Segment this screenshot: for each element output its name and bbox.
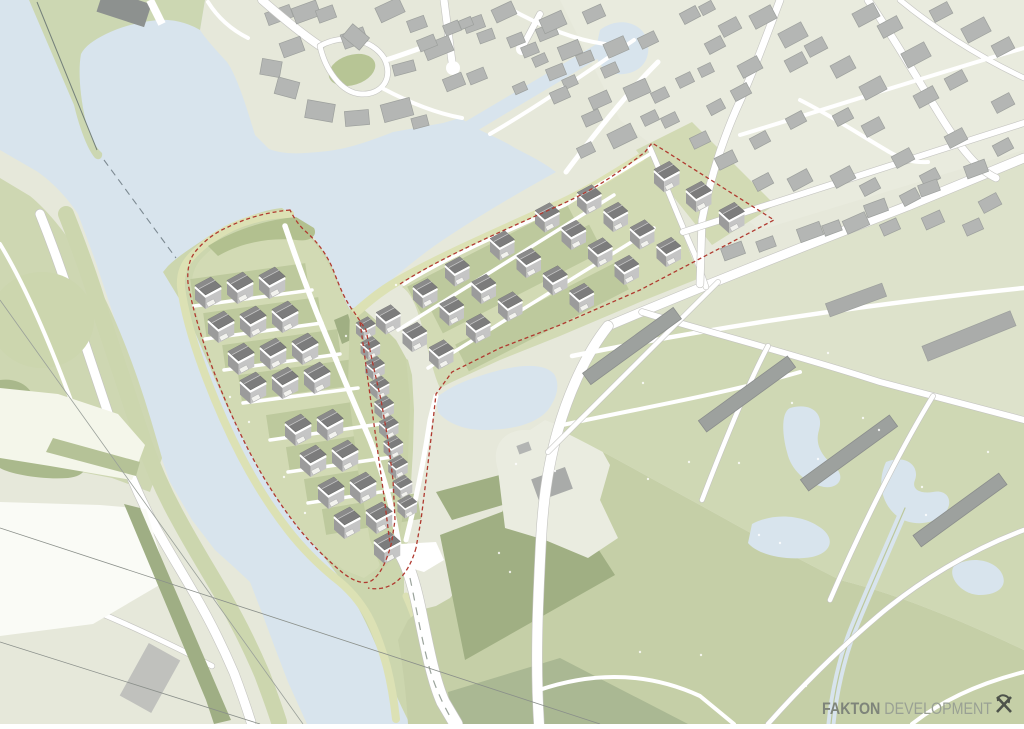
svg-text:FAKTON DEVELOPMENT: FAKTON DEVELOPMENT (822, 699, 992, 718)
